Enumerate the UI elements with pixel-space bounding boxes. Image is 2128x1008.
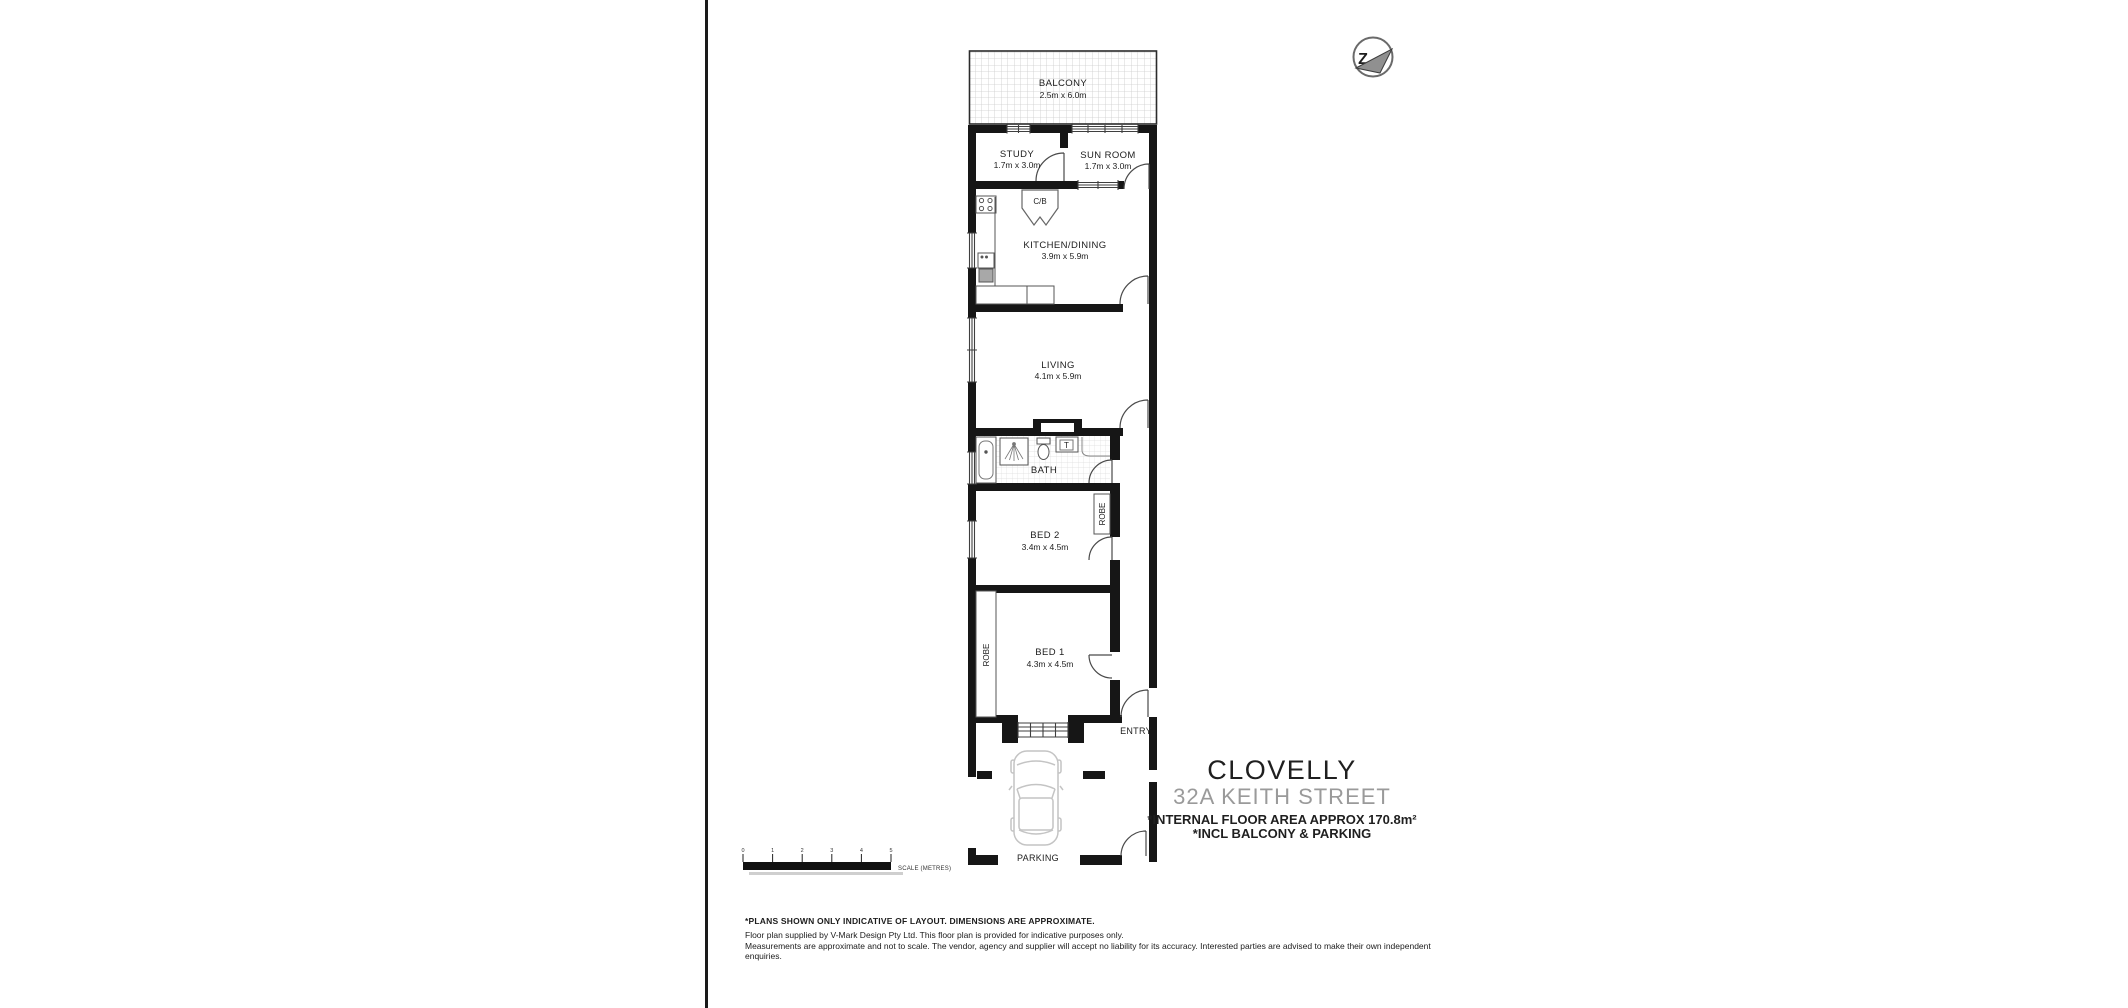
entry-label: ENTRY (1120, 726, 1152, 736)
kitchen-sink (978, 253, 994, 268)
scale-ticks (743, 854, 891, 862)
street-address: 32A KEITH STREET (1132, 785, 1432, 809)
compass-logo: Z (1354, 38, 1393, 77)
scale-tick-5: 5 (889, 848, 892, 854)
title-block: CLOVELLY 32A KEITH STREET *INTERNAL FLOO… (1132, 756, 1432, 842)
bath-label: BATH (1031, 465, 1057, 476)
kitchen-label: KITCHEN/DINING (1023, 240, 1106, 251)
cupboard-symbol (1022, 190, 1058, 225)
scale-tick-1: 1 (771, 848, 774, 854)
bed2-dims: 3.4m x 4.5m (1022, 542, 1069, 552)
bed1-label: BED 1 (1035, 647, 1064, 658)
scale-tick-0: 0 (741, 848, 744, 854)
page-divider-line (705, 0, 708, 1008)
disclaimer: *PLANS SHOWN ONLY INDICATIVE OF LAYOUT. … (745, 916, 1465, 961)
disclaimer-line-2: Floor plan supplied by V-Mark Design Pty… (745, 930, 1465, 940)
scale-tick-3: 3 (830, 848, 833, 854)
walls (968, 125, 1157, 865)
study-dims: 1.7m x 3.0m (994, 160, 1041, 170)
scale-bar-label: SCALE (METRES) (898, 866, 951, 872)
scale-bar-shadow (749, 872, 903, 875)
stove (976, 196, 996, 213)
balcony-label: BALCONY (1039, 78, 1087, 89)
toilet (1038, 445, 1049, 460)
balcony-dims: 2.5m x 6.0m (1040, 90, 1087, 100)
toilet-tank (1037, 438, 1050, 444)
study-label: STUDY (1000, 149, 1034, 160)
car (1009, 751, 1063, 845)
parking-label: PARKING (1017, 853, 1059, 863)
cupboard-label: C/B (1033, 197, 1046, 206)
dishwasher (979, 269, 993, 282)
sunroom-label: SUN ROOM (1080, 150, 1135, 161)
suburb-title: CLOVELLY (1132, 756, 1432, 784)
scale-bar-rect (743, 862, 891, 870)
robe-bed2-label: ROBE (1098, 503, 1107, 526)
inclusions-note: *INCL BALCONY & PARKING (1132, 827, 1432, 842)
fireplace (1041, 423, 1074, 432)
kitchen-dims: 3.9m x 5.9m (1042, 251, 1089, 261)
floor-area-note: *INTERNAL FLOOR AREA APPROX 170.8m² (1132, 813, 1432, 828)
floor-plan-page: BALCONY 2.5m x 6.0m STUDY 1.7m x 3.0m SU… (0, 0, 2128, 1008)
floor-plan-canvas: BALCONY 2.5m x 6.0m STUDY 1.7m x 3.0m SU… (0, 0, 2128, 1008)
vanity-label: T (1064, 441, 1069, 450)
living-dims: 4.1m x 5.9m (1035, 371, 1082, 381)
scale-tick-4: 4 (860, 848, 863, 854)
robe-bed1-label: ROBE (982, 644, 991, 667)
disclaimer-line-1: *PLANS SHOWN ONLY INDICATIVE OF LAYOUT. … (745, 916, 1465, 926)
disclaimer-line-3: Measurements are approximate and not to … (745, 941, 1465, 961)
sunroom-dims: 1.7m x 3.0m (1085, 161, 1132, 171)
bed2-label: BED 2 (1030, 530, 1059, 541)
kitchen-bench (976, 286, 1054, 304)
scale-tick-2: 2 (801, 848, 804, 854)
scale-bar: 0 1 2 3 4 5 SCALE (METRES) (741, 848, 951, 875)
bed1-dims: 4.3m x 4.5m (1027, 659, 1074, 669)
living-label: LIVING (1041, 360, 1075, 371)
